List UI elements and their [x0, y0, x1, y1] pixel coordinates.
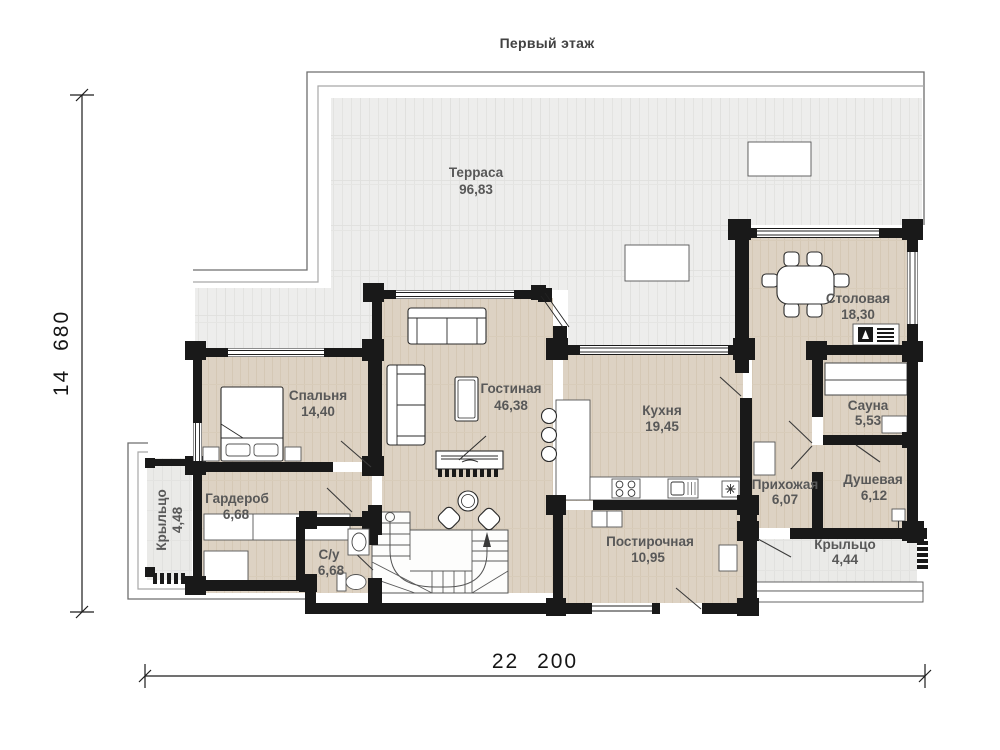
dimension-width-text: 22 200 — [492, 650, 578, 673]
wc-area: 6,68 — [318, 563, 345, 578]
sauna-stove-unit — [853, 324, 899, 345]
hallway-label: Прихожая — [752, 477, 819, 492]
porch-left-area: 4,48 — [170, 506, 185, 533]
porch-right-area: 4,44 — [832, 552, 859, 567]
page-title: Первый этаж — [500, 35, 596, 51]
washing-machine — [719, 545, 737, 571]
porch-left-label: Крыльцо — [154, 489, 169, 550]
hallway-cabinet — [754, 442, 775, 475]
bedroom-area: 14,40 — [301, 404, 335, 419]
dimension-height-text: 14 680 — [50, 310, 73, 396]
terrace-table — [748, 142, 811, 176]
terrace-table — [625, 245, 689, 281]
kitchen-area: 19,45 — [645, 419, 679, 434]
laundry-label: Постирочная — [606, 534, 694, 549]
stove — [612, 479, 640, 498]
porch-right-step1 — [750, 582, 923, 591]
shower-area: 6,12 — [861, 488, 887, 503]
sofa-top — [408, 308, 486, 344]
bedroom-left-window — [194, 423, 202, 461]
dining-top-window — [757, 229, 879, 237]
laundry-area: 10,95 — [631, 550, 665, 565]
kitchen-label: Кухня — [642, 403, 681, 418]
kitchen-sink — [668, 479, 698, 498]
terrace-label: Терраса — [449, 165, 504, 180]
living-label: Гостиная — [480, 381, 541, 396]
shower-label: Душевая — [843, 472, 903, 487]
sauna-label: Сауна — [848, 398, 889, 413]
corner-sink-unit — [722, 481, 739, 497]
nightstand — [285, 447, 301, 461]
wc-label: С/у — [318, 547, 340, 562]
living-top-window — [396, 291, 514, 299]
chair — [762, 274, 778, 287]
porch-right-steps — [917, 541, 928, 569]
chair — [784, 303, 799, 317]
wardrobe-label: Гардероб — [205, 491, 269, 506]
wc-sink — [348, 529, 369, 555]
sofa-left — [387, 365, 425, 445]
floor-plan-canvas: Терраса 96,83 Столовая 18,30 Спальня 14,… — [0, 0, 1000, 750]
bar-stools — [542, 409, 557, 462]
hall-cabinet — [204, 551, 248, 581]
sauna-area: 5,53 — [855, 413, 882, 428]
dimension-vertical: 14 680 — [50, 89, 94, 618]
kitchen-top-window — [580, 346, 728, 354]
bedroom-label: Спальня — [289, 388, 347, 403]
chair — [833, 274, 849, 287]
porch-right-step2 — [750, 591, 923, 602]
dining-right-window — [908, 252, 918, 324]
dining-area: 18,30 — [841, 307, 875, 322]
hallway-area: 6,07 — [772, 492, 798, 507]
coffee-table — [455, 377, 478, 421]
terrace-area: 96,83 — [459, 182, 493, 197]
nightstand — [203, 447, 219, 461]
wardrobe-area: 6,68 — [223, 507, 250, 522]
dimension-horizontal: 22 200 — [139, 650, 931, 688]
chair — [807, 252, 822, 266]
pillow — [226, 444, 250, 456]
sauna-heater — [882, 416, 907, 433]
bar-counter — [556, 400, 590, 500]
pillow — [254, 444, 278, 456]
floor-plan-drawing: Терраса 96,83 Столовая 18,30 Спальня 14,… — [0, 0, 1000, 750]
porch-right-label: Крыльцо — [814, 537, 875, 552]
chair — [807, 303, 822, 317]
laundry-bottom-window — [592, 604, 652, 614]
living-area: 46,38 — [494, 398, 528, 413]
dining-label: Столовая — [826, 291, 890, 306]
bedroom-top-window — [228, 349, 324, 357]
chair — [784, 252, 799, 266]
